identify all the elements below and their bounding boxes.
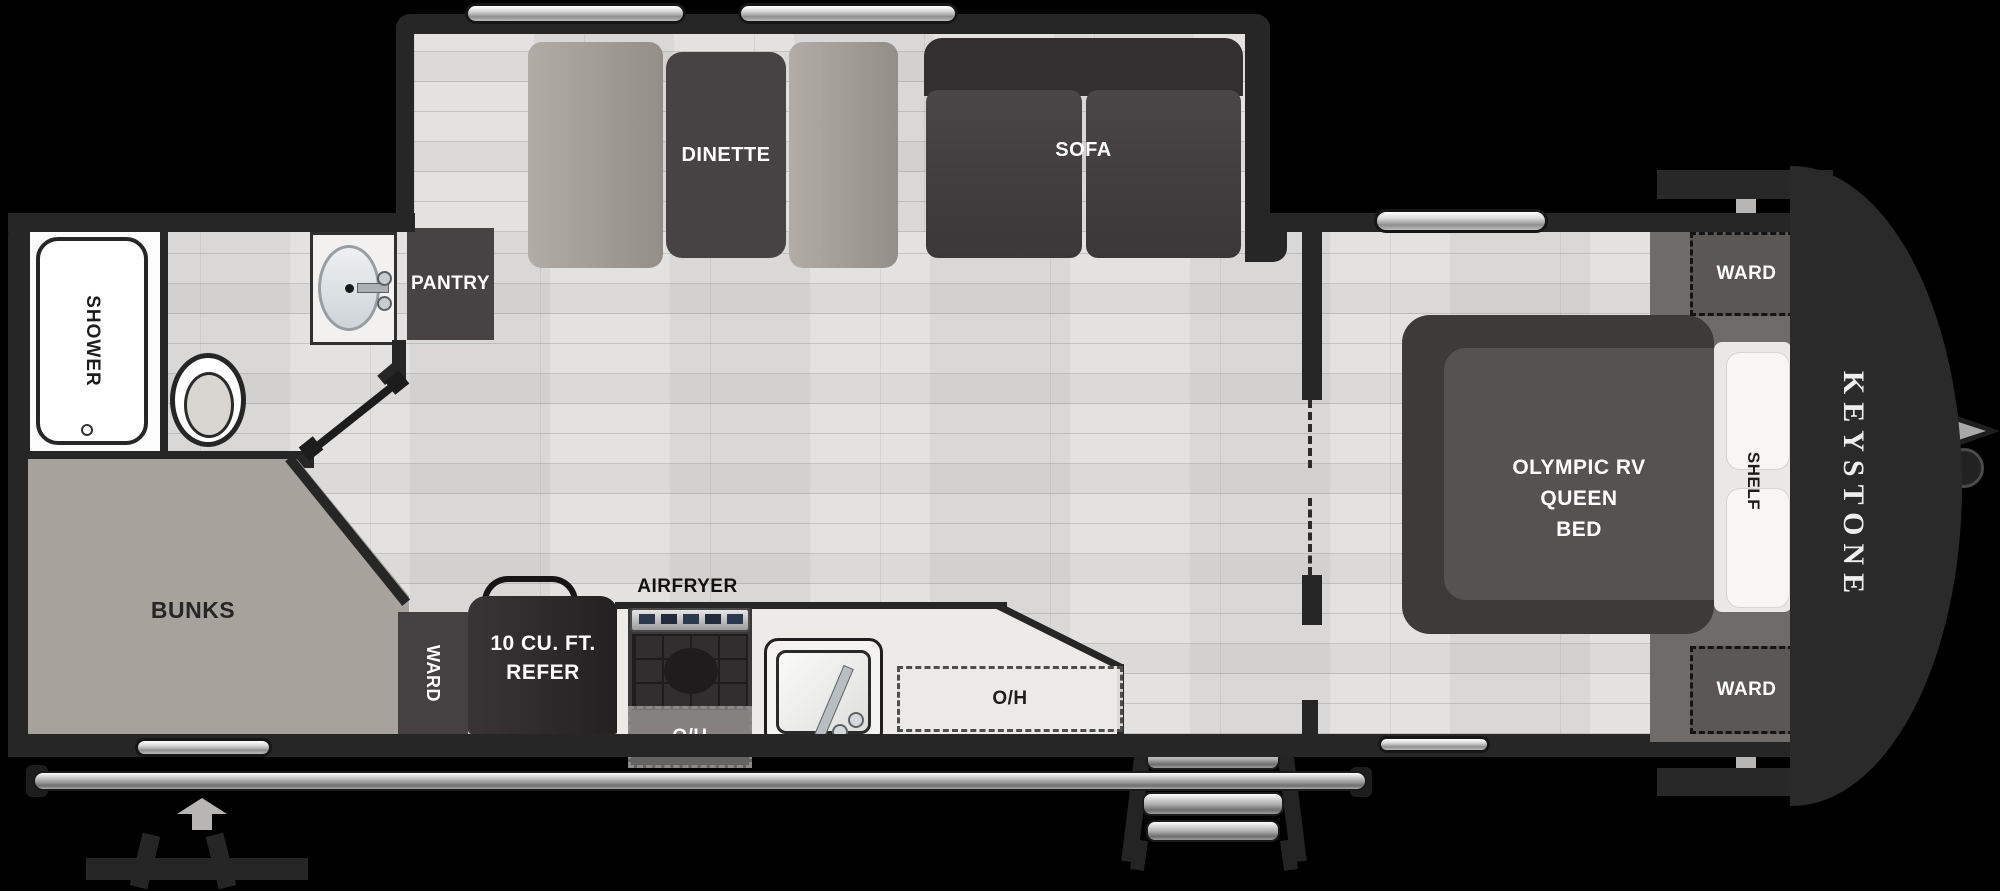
entry-step-tread-2	[1142, 792, 1284, 816]
dinette-label: DINETTE	[681, 144, 770, 167]
kitchen-faucet-handle-2-icon	[848, 712, 864, 728]
overhead-counter-label: O/H	[992, 688, 1027, 710]
ward-front-top: WARD	[1690, 232, 1803, 316]
sofa-cushion-left	[926, 90, 1082, 258]
dinette-bench-right	[789, 42, 898, 268]
shower-drain-icon	[81, 424, 93, 436]
stabilizer-jack-bar	[86, 858, 308, 880]
stove-vent-slot-2	[661, 614, 677, 624]
sofa-cushion-right	[1086, 90, 1241, 258]
partition-post-mid	[1302, 575, 1322, 625]
bath-sink-drain-icon	[345, 284, 354, 293]
stove-vent-slot-4	[705, 614, 721, 624]
pantry-label: PANTRY	[411, 273, 490, 295]
refer-label-line2: REFER	[468, 661, 618, 685]
bottom-wall	[8, 734, 1800, 757]
brand-logo: KEYSTONE	[1836, 371, 1870, 601]
bedroom-top-window	[1374, 209, 1548, 233]
airfryer-label: AIRFRYER	[600, 576, 775, 598]
entry-step-tread-3	[1146, 820, 1280, 842]
shelf-label: SHELF	[1743, 452, 1763, 510]
pocket-door-dashed-1	[1308, 400, 1312, 468]
stove-burner-icon	[664, 648, 718, 694]
ward-front-top-label: WARD	[1716, 263, 1776, 285]
slideout-window-left	[465, 3, 686, 24]
brand-logo-wrap: KEYSTONE	[1832, 336, 1874, 636]
access-arrow-down-stem	[1736, 199, 1756, 213]
rv-floorplan: DINETTE SOFA SHOWER PANTRY BUNKS WARD	[0, 0, 2000, 891]
refer-label-line1: 10 CU. FT.	[468, 632, 618, 656]
ward-front-bottom: WARD	[1690, 646, 1803, 734]
bunks-bottom-window	[135, 738, 272, 757]
ward-front-bottom-label: WARD	[1716, 679, 1776, 701]
slideout-wall-foot	[1245, 228, 1287, 262]
access-arrow-up-rear-icon	[177, 798, 227, 814]
overhead-cabinet-counter: O/H	[897, 666, 1123, 732]
partition-post-top	[1302, 213, 1322, 400]
shower-divider-wall	[160, 230, 168, 453]
pantry-cabinet: PANTRY	[407, 228, 494, 340]
front-nose-cap	[1790, 166, 1962, 806]
bath-faucet-handle-bottom-icon	[377, 296, 392, 311]
sofa-back	[924, 38, 1243, 96]
dinette-table: DINETTE	[666, 52, 786, 258]
bath-faucet-handle-top-icon	[377, 271, 392, 286]
bed-label-line1: OLYMPIC RV	[1444, 452, 1714, 483]
toilet-seat-icon	[184, 372, 234, 438]
stove-vent-slot-1	[639, 614, 655, 624]
dinette-bench-left	[528, 42, 663, 268]
sofa-label-wrap: SOFA	[924, 136, 1243, 164]
top-wall-rear	[8, 213, 415, 232]
access-arrow-up-rear-stem	[192, 814, 212, 830]
slideout-window-right	[738, 3, 958, 24]
stove-vent-slot-5	[727, 614, 743, 624]
bed-label-line3: BED	[1444, 514, 1714, 545]
kitchen-ward-label: WARD	[422, 645, 443, 702]
shower-label: SHOWER	[81, 295, 103, 387]
partition-post-bottom	[1302, 700, 1318, 740]
pocket-door-dashed-2	[1308, 498, 1312, 575]
bed-label-wrap: OLYMPIC RV QUEEN BED	[1444, 452, 1714, 545]
bed-label-line2: QUEEN	[1444, 483, 1714, 514]
bunks-label: BUNKS	[151, 597, 235, 624]
stove-vent-slot-3	[683, 614, 699, 624]
entry-step-leg-left	[1130, 839, 1148, 871]
bedroom-bottom-window	[1378, 736, 1490, 753]
awning-rail	[33, 771, 1367, 791]
refrigerator: 10 CU. FT. REFER	[468, 596, 618, 734]
bunks-label-wrap: BUNKS	[98, 596, 288, 624]
sofa-label: SOFA	[1055, 139, 1111, 162]
